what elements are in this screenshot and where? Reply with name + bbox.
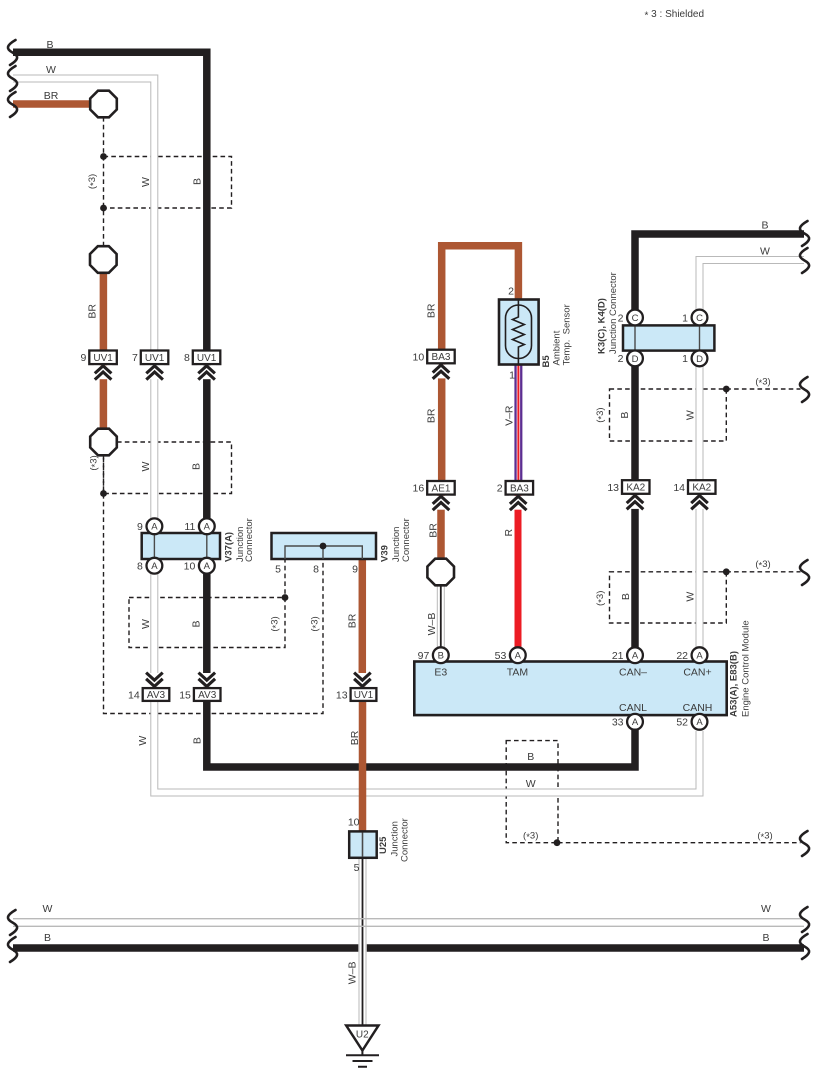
svg-text:BA3: BA3 xyxy=(510,483,529,494)
svg-text:V39: V39 xyxy=(380,545,391,562)
svg-text:(*3): (*3) xyxy=(595,407,608,422)
svg-text:W: W xyxy=(43,903,53,915)
svg-text:(*3): (*3) xyxy=(87,174,100,189)
svg-text:B: B xyxy=(192,178,204,185)
svg-text:9: 9 xyxy=(352,564,358,576)
svg-text:R: R xyxy=(503,528,515,536)
svg-text:W: W xyxy=(684,592,696,602)
svg-text:W: W xyxy=(760,246,770,258)
svg-text:11: 11 xyxy=(184,521,195,533)
svg-text:BR: BR xyxy=(349,730,361,745)
svg-text:A: A xyxy=(696,717,703,728)
svg-text:W–B: W–B xyxy=(426,613,438,636)
svg-text:W: W xyxy=(140,461,152,471)
svg-text:21: 21 xyxy=(612,650,624,662)
svg-text:E3: E3 xyxy=(434,667,447,679)
svg-text:A: A xyxy=(632,717,639,728)
svg-text:BR: BR xyxy=(428,523,440,538)
svg-text:7: 7 xyxy=(132,352,138,364)
svg-text:B5: B5 xyxy=(541,355,552,368)
svg-text:AE1: AE1 xyxy=(432,483,451,494)
svg-text:1: 1 xyxy=(682,353,688,365)
svg-text:B: B xyxy=(191,463,203,470)
svg-text:(*3): (*3) xyxy=(595,591,608,606)
svg-text:2: 2 xyxy=(618,353,624,365)
svg-text:14: 14 xyxy=(673,482,685,494)
svg-text:(*3): (*3) xyxy=(755,377,770,390)
svg-text:(*3): (*3) xyxy=(757,831,772,844)
svg-text:13: 13 xyxy=(336,689,348,701)
svg-text:W: W xyxy=(137,736,149,746)
svg-text:W: W xyxy=(761,903,771,915)
svg-text:Temp. Sensor: Temp. Sensor xyxy=(561,304,572,365)
svg-text:D: D xyxy=(632,354,639,365)
svg-text:(*3): (*3) xyxy=(270,616,283,631)
svg-text:Connector: Connector xyxy=(399,818,410,862)
svg-text:CAN+: CAN+ xyxy=(683,667,711,679)
svg-text:22: 22 xyxy=(676,650,688,662)
svg-text:5: 5 xyxy=(354,862,360,874)
svg-text:V37(A): V37(A) xyxy=(224,532,235,562)
svg-text:B: B xyxy=(761,220,768,232)
svg-text:W–B: W–B xyxy=(347,961,359,984)
svg-text:8: 8 xyxy=(313,564,319,576)
svg-text:14: 14 xyxy=(128,689,140,701)
svg-text:W: W xyxy=(140,177,152,187)
svg-text:53: 53 xyxy=(495,650,507,662)
svg-text:(*3): (*3) xyxy=(89,455,102,470)
svg-text:9: 9 xyxy=(137,521,143,533)
svg-text:CAN–: CAN– xyxy=(619,667,647,679)
svg-text:W: W xyxy=(526,778,536,790)
svg-text:Connector: Connector xyxy=(244,518,255,562)
svg-text:BR: BR xyxy=(347,613,359,628)
svg-text:UV1: UV1 xyxy=(145,353,165,364)
svg-text:B: B xyxy=(527,751,534,763)
svg-text:(*3): (*3) xyxy=(309,616,322,631)
svg-text:V–R: V–R xyxy=(504,405,516,426)
svg-text:W: W xyxy=(140,619,152,629)
svg-text:KA2: KA2 xyxy=(626,483,645,494)
svg-text:B: B xyxy=(44,932,51,944)
svg-text:* 3 : Shielded: * 3 : Shielded xyxy=(645,9,705,22)
svg-text:UV1: UV1 xyxy=(354,690,374,701)
svg-text:AV3: AV3 xyxy=(198,690,217,701)
svg-text:B: B xyxy=(762,932,769,944)
svg-text:97: 97 xyxy=(418,650,430,662)
svg-text:U2: U2 xyxy=(356,1030,369,1041)
svg-text:33: 33 xyxy=(612,717,624,729)
svg-text:A: A xyxy=(632,651,639,662)
svg-text:A: A xyxy=(515,651,522,662)
svg-text:A53(A), E83(B): A53(A), E83(B) xyxy=(728,651,739,717)
svg-text:5: 5 xyxy=(275,564,281,576)
svg-text:BA3: BA3 xyxy=(432,352,451,363)
svg-text:1: 1 xyxy=(682,312,688,324)
svg-text:BR: BR xyxy=(44,90,59,102)
svg-text:10: 10 xyxy=(184,561,196,573)
svg-text:A: A xyxy=(204,522,211,533)
svg-text:Connector: Connector xyxy=(401,518,412,562)
svg-text:C: C xyxy=(696,313,703,324)
svg-text:(*3): (*3) xyxy=(755,559,770,572)
svg-text:BR: BR xyxy=(86,304,98,319)
svg-text:2: 2 xyxy=(508,286,514,298)
svg-text:A: A xyxy=(151,561,158,572)
svg-text:8: 8 xyxy=(137,561,143,573)
svg-text:BR: BR xyxy=(426,408,438,423)
svg-text:A: A xyxy=(151,522,158,533)
svg-text:10: 10 xyxy=(413,351,425,363)
svg-text:W: W xyxy=(46,64,56,76)
svg-text:BR: BR xyxy=(426,303,438,318)
svg-text:2: 2 xyxy=(497,483,503,495)
svg-text:C: C xyxy=(632,313,639,324)
svg-text:AV3: AV3 xyxy=(147,690,166,701)
svg-text:B: B xyxy=(191,620,203,627)
svg-text:UV1: UV1 xyxy=(197,353,217,364)
svg-text:B: B xyxy=(619,412,631,419)
svg-text:52: 52 xyxy=(676,717,688,729)
svg-text:D: D xyxy=(696,354,703,365)
svg-text:A: A xyxy=(204,561,211,572)
svg-text:(*3): (*3) xyxy=(523,831,538,844)
svg-text:K3(C), K4(D): K3(C), K4(D) xyxy=(596,298,607,354)
svg-text:B: B xyxy=(438,651,444,662)
svg-text:B: B xyxy=(620,593,632,600)
svg-text:KA2: KA2 xyxy=(692,483,711,494)
svg-text:UV1: UV1 xyxy=(93,353,113,364)
svg-text:8: 8 xyxy=(184,352,190,364)
svg-text:CANL: CANL xyxy=(619,702,647,714)
svg-text:13: 13 xyxy=(607,482,619,494)
svg-text:B: B xyxy=(46,39,53,51)
svg-text:A: A xyxy=(696,651,703,662)
svg-text:10: 10 xyxy=(348,817,360,829)
svg-text:15: 15 xyxy=(179,689,191,701)
svg-text:Engine Control Module: Engine Control Module xyxy=(740,620,751,717)
svg-text:W: W xyxy=(685,410,697,420)
svg-text:1: 1 xyxy=(509,370,515,382)
svg-text:CANH: CANH xyxy=(683,702,713,714)
svg-text:Junction Connector: Junction Connector xyxy=(608,272,619,354)
svg-text:B: B xyxy=(192,737,204,744)
svg-text:TAM: TAM xyxy=(507,667,528,679)
svg-text:9: 9 xyxy=(80,352,86,364)
svg-text:U25: U25 xyxy=(378,836,389,854)
svg-text:16: 16 xyxy=(413,483,425,495)
